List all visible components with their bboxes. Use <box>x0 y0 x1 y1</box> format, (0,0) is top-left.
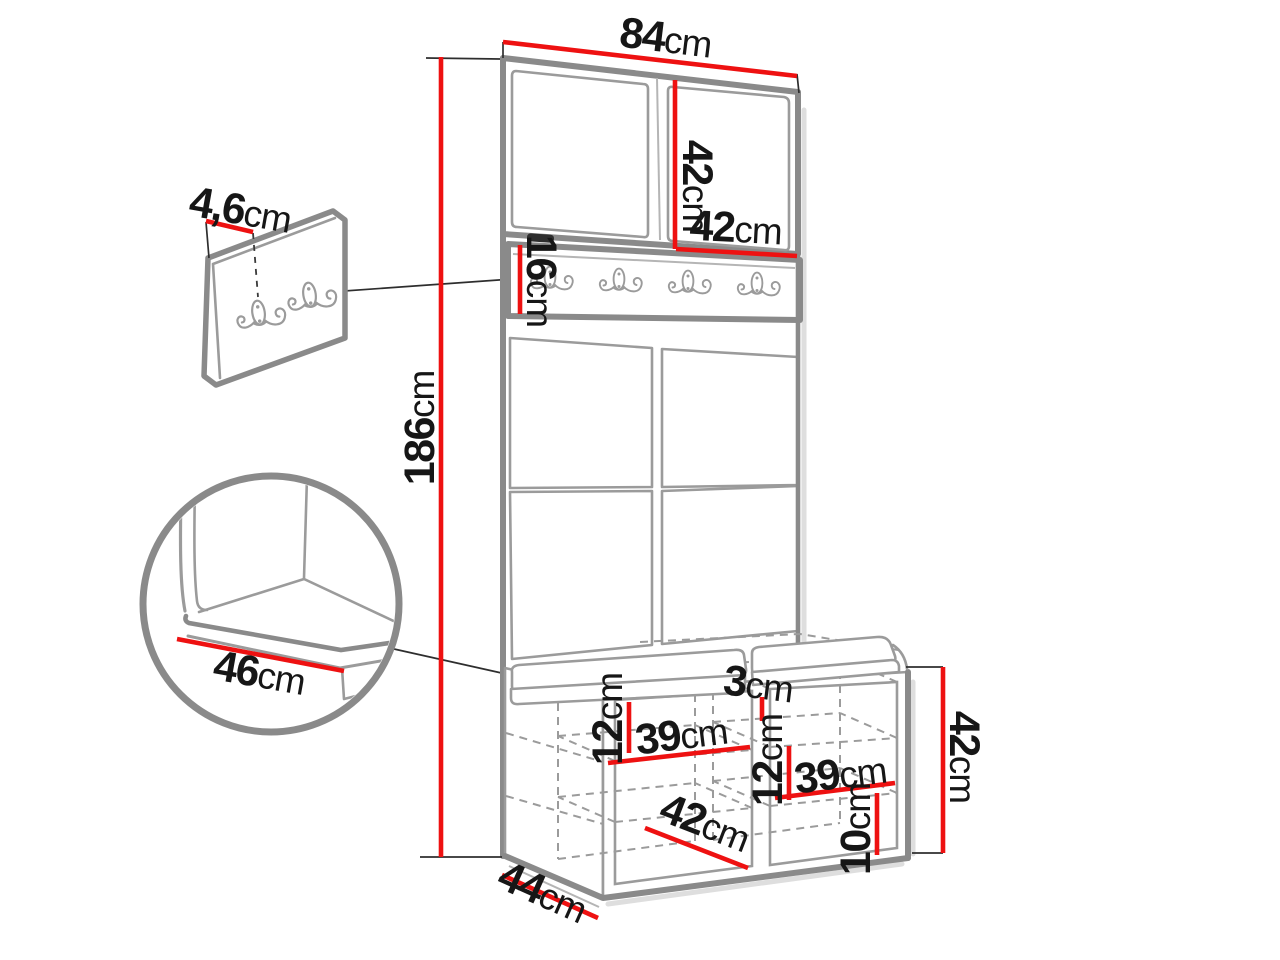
label-right-shelf-spacing: 12cm <box>744 714 792 806</box>
leader-line-seat-detail <box>394 649 506 674</box>
label-total-height: 186cm <box>396 371 444 486</box>
padded-panel <box>510 491 652 659</box>
label-bottom-shelf-height: 10cm <box>832 783 880 875</box>
padded-panel <box>510 338 652 488</box>
label-bench-height: 42cm <box>940 711 988 803</box>
label-left-shelf-spacing: 12cm <box>584 673 632 765</box>
left-door <box>512 71 648 237</box>
upholstered-panels <box>510 338 798 659</box>
padded-panel <box>662 349 798 487</box>
label-panel-depth: 4,6cm <box>186 178 295 243</box>
padded-panel <box>662 486 798 644</box>
label-rail-height: 16cm <box>517 235 565 327</box>
diagram-canvas: 84cm 186cm 42cm 42cm 16cm 4,6cm 46cm 12c… <box>0 0 1280 960</box>
furniture-dimension-diagram: 84cm 186cm 42cm 42cm 16cm 4,6cm 46cm 12c… <box>0 0 1280 960</box>
